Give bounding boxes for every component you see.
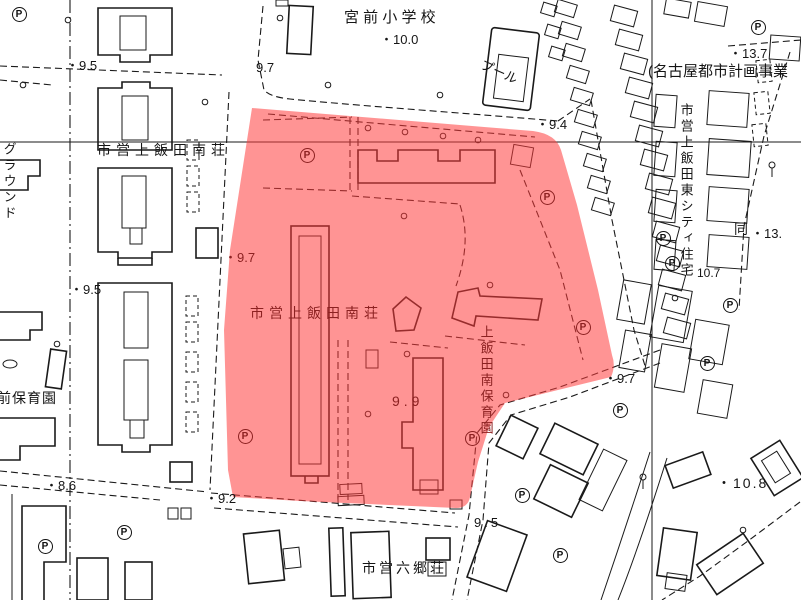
map-label-elev-9-2: ・9.2 bbox=[205, 492, 236, 506]
parking-icon: P bbox=[465, 431, 480, 446]
map-label-elev-8-6: ・8.6 bbox=[45, 479, 76, 493]
map-label-nursery-mae: 前保育園 bbox=[0, 391, 57, 406]
map-label-plan-title: (名古屋都市計画事業 bbox=[648, 64, 788, 80]
map-label-elev-9-7-right: ・9.7 bbox=[604, 372, 635, 386]
parking-icon: P bbox=[613, 403, 628, 418]
buildings-east-rows bbox=[617, 59, 772, 418]
map-label-elev-13-x: ・13. bbox=[751, 227, 782, 241]
map-label-ground: グラウンド bbox=[2, 142, 16, 222]
map-label-elev-13-7: ・13.7 bbox=[729, 47, 767, 61]
map-label-elev-9-9: 9.9 bbox=[392, 394, 423, 409]
map-label-south-name: 市営上飯田南荘 bbox=[250, 306, 383, 321]
parking-icon: P bbox=[300, 148, 315, 163]
map-label-elev-10-8: ・10.8 bbox=[717, 476, 768, 491]
parking-icon: P bbox=[515, 488, 530, 503]
map-label-elev-10-7: 10.7 bbox=[697, 267, 720, 280]
map-label-elev-9-5-top: ・9.5 bbox=[66, 59, 97, 73]
buildings-bottom-left bbox=[12, 462, 192, 600]
map-label-south-west-name: 市営上飯田南荘 bbox=[97, 143, 230, 158]
map-label-elev-9-7-red: ・9.7 bbox=[224, 251, 255, 265]
map-label-elev-9-4: ・9.4 bbox=[536, 118, 567, 132]
map-label-elev-9-5-bottom: 9.5 bbox=[474, 516, 501, 530]
parking-icon: P bbox=[665, 256, 680, 271]
map-linework bbox=[0, 0, 801, 600]
map-label-rokugo-name: 市営六郷荘 bbox=[362, 561, 447, 576]
parking-icon: P bbox=[12, 7, 27, 22]
map-label-elev-10-0: ・10.0 bbox=[380, 33, 418, 47]
parking-icon: P bbox=[238, 429, 253, 444]
parking-icon: P bbox=[540, 190, 555, 205]
parking-icon: P bbox=[700, 356, 715, 371]
parking-icon: P bbox=[576, 320, 591, 335]
parking-icon: P bbox=[751, 20, 766, 35]
parking-icon: P bbox=[117, 525, 132, 540]
map-label-elev-9-7-school: 9.7 bbox=[256, 61, 274, 75]
parking-icon: P bbox=[723, 298, 738, 313]
buildings-south-east bbox=[467, 415, 801, 600]
parking-icon: P bbox=[553, 548, 568, 563]
map-label-elev-9-5-left: ・9.5 bbox=[70, 283, 101, 297]
map-label-school-name: 宮 前 小 学 校 bbox=[344, 10, 436, 26]
map-stage[interactable]: 宮 前 小 学 校・10.0プール9.7(名古屋都市計画事業・13.7・9.4市… bbox=[0, 0, 801, 600]
parking-icon: P bbox=[38, 539, 53, 554]
parking-icon: P bbox=[656, 231, 671, 246]
map-label-dou: 同 bbox=[734, 222, 748, 237]
map-label-nursery-south: 上飯田南保育園 bbox=[479, 325, 493, 437]
map-label-east-city-name: 市営上飯田東シティ住宅 bbox=[679, 103, 693, 279]
